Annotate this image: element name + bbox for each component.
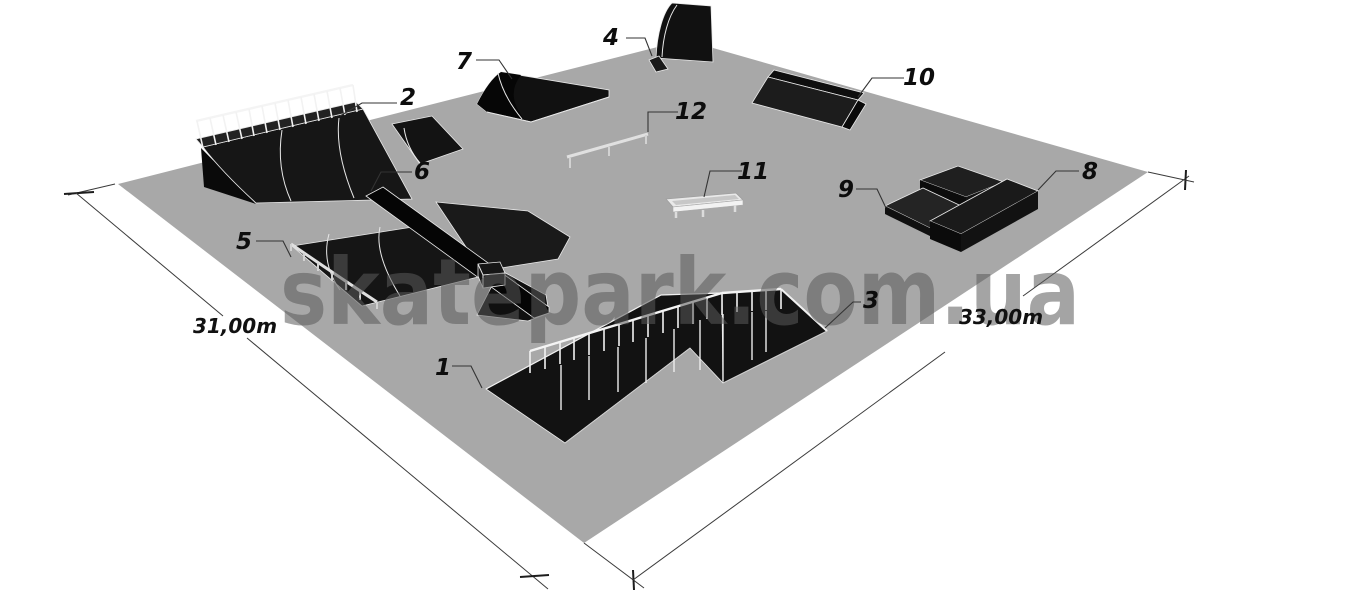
label-10: 10 <box>858 65 935 97</box>
svg-text:1: 1 <box>435 355 451 381</box>
svg-text:6: 6 <box>414 159 430 185</box>
svg-text:2: 2 <box>400 85 416 111</box>
svg-text:10: 10 <box>903 65 935 91</box>
svg-text:12: 12 <box>675 99 707 125</box>
skatepark-plan: skatepark.com.ua 31,00m 33,00m 1 2 3 4 5… <box>0 0 1350 600</box>
svg-text:5: 5 <box>236 229 252 255</box>
svg-text:8: 8 <box>1082 159 1098 185</box>
svg-text:7: 7 <box>456 49 472 75</box>
svg-text:3: 3 <box>863 288 879 314</box>
plan-canvas: skatepark.com.ua 31,00m 33,00m 1 2 3 4 5… <box>0 0 1350 600</box>
dimension-label-right: 33,00m <box>959 305 1043 329</box>
watermark-text: skatepark.com.ua <box>280 239 1080 346</box>
dimension-label-left: 31,00m <box>193 314 277 338</box>
svg-text:4: 4 <box>602 25 619 51</box>
svg-text:9: 9 <box>838 177 854 203</box>
svg-text:11: 11 <box>737 159 769 185</box>
